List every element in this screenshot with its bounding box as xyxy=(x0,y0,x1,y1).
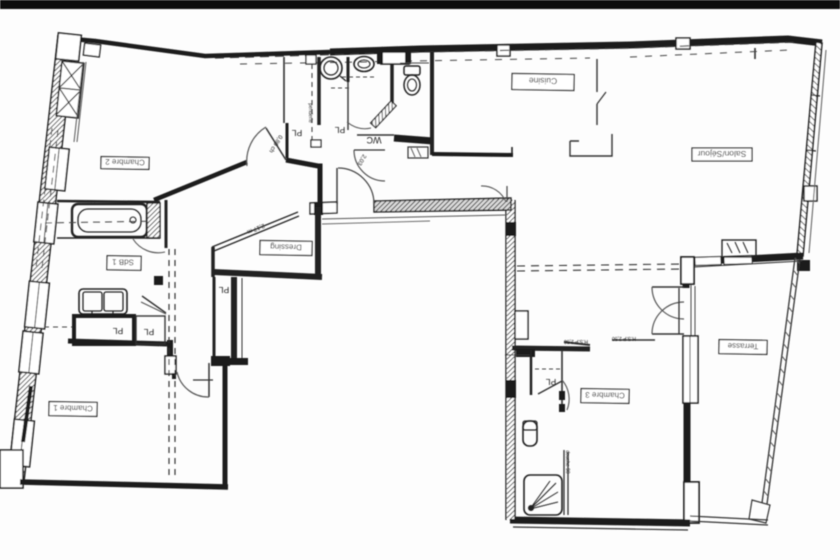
svg-text:Dressing: Dressing xyxy=(270,242,302,252)
svg-text:penderie: penderie xyxy=(307,103,313,123)
svg-text:PL: PL xyxy=(219,285,230,295)
svg-text:SdB 1: SdB 1 xyxy=(111,257,133,266)
svg-text:Chambre 2: Chambre 2 xyxy=(105,157,145,167)
svg-text:PL: PL xyxy=(292,128,303,138)
svg-text:Chambre 3: Chambre 3 xyxy=(585,390,625,400)
svg-text:H.S.P 2,50: H.S.P 2,50 xyxy=(564,338,588,344)
svg-text:PL: PL xyxy=(113,326,124,336)
svg-text:PL: PL xyxy=(144,327,155,337)
svg-text:WC: WC xyxy=(366,135,381,145)
svg-text:douche 90: douche 90 xyxy=(564,450,570,474)
svg-text:PL: PL xyxy=(546,377,557,387)
svg-text:Terrasse: Terrasse xyxy=(727,341,758,351)
svg-text:PL: PL xyxy=(335,125,346,135)
svg-text:Chambre 1: Chambre 1 xyxy=(53,403,93,413)
svg-text:Salon/Séjour: Salon/Séjour xyxy=(697,149,746,159)
svg-text:H.S.P 2,50: H.S.P 2,50 xyxy=(612,335,636,341)
svg-text:Cuisine: Cuisine xyxy=(528,76,557,86)
